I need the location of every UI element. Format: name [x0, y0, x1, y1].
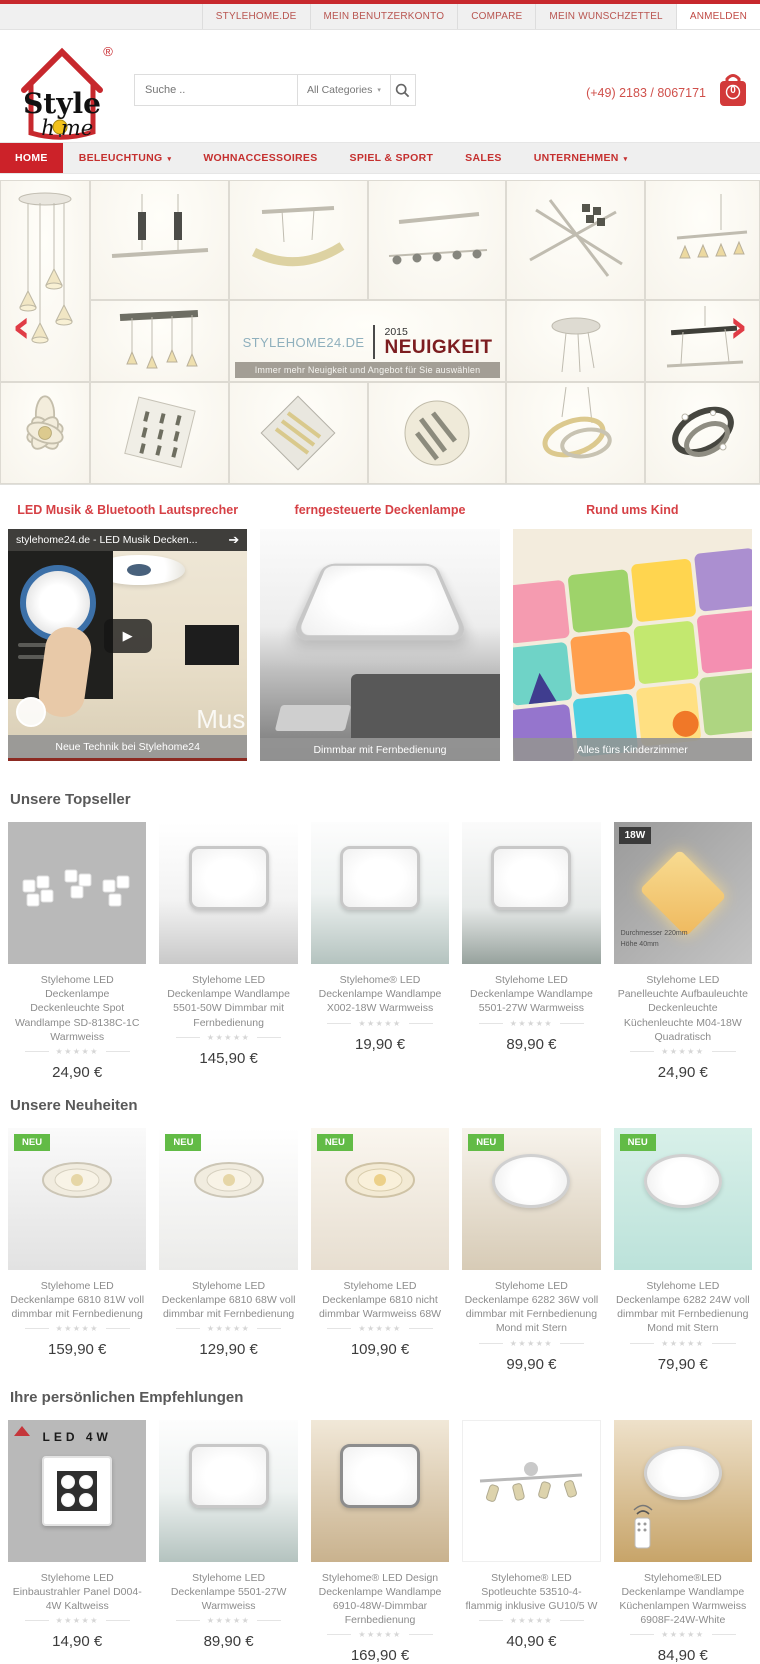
svg-text:me: me	[61, 116, 93, 140]
promo-image-livingroom[interactable]: Dimmbar mit Fernbedienung	[260, 529, 499, 761]
product-card[interactable]: Stylehome® LED Design Deckenlampe Wandla…	[311, 1420, 449, 1664]
section-title: Unsere Topseller	[0, 775, 760, 822]
product-name[interactable]: Stylehome LED Deckenlampe Wandlampe 5501…	[462, 973, 600, 1016]
rating: ★★★★★	[8, 1616, 146, 1625]
ring-pendant-icon	[526, 387, 626, 479]
round-leaf-lamp-icon	[389, 387, 485, 479]
product-price: 24,90 €	[8, 1064, 146, 1081]
logo[interactable]: Style h me ®	[10, 40, 128, 149]
new-badge: NEU	[468, 1134, 504, 1151]
hero-tile-round-canopy[interactable]	[506, 300, 645, 382]
search-button[interactable]	[390, 75, 415, 105]
section-neuheiten: Unsere Neuheiten NEU Stylehome LED Decke…	[0, 1081, 760, 1373]
product-card[interactable]: NEU Stylehome LED Deckenlampe 6282 24W v…	[614, 1128, 752, 1373]
search-input[interactable]	[135, 75, 297, 105]
rating: ★★★★★	[311, 1324, 449, 1333]
product-price: 84,90 €	[614, 1647, 752, 1664]
new-badge: NEU	[165, 1134, 201, 1151]
search-icon	[395, 83, 410, 98]
product-name[interactable]: Stylehome® LED Spotleuchte 53510-4-flamm…	[462, 1571, 600, 1614]
section-topseller: Unsere Topseller Stylehome LED Deckenlam…	[0, 775, 760, 1081]
spot-bar-lamp-icon	[472, 1459, 590, 1523]
play-button[interactable]: ▶	[104, 619, 152, 653]
product-name[interactable]: Stylehome LED Deckenlampe 6282 36W voll …	[462, 1279, 600, 1336]
rating: ★★★★★	[462, 1019, 600, 1028]
video-watermark: Mus	[196, 704, 245, 735]
product-name[interactable]: Stylehome LED Deckenlampe 6810 81W voll …	[8, 1279, 146, 1322]
ceiling-lamp	[290, 564, 471, 641]
new-badge: NEU	[317, 1134, 353, 1151]
rating: ★★★★★	[462, 1616, 600, 1625]
topbar-link-compare[interactable]: COMPARE	[457, 4, 535, 29]
wave-ceiling-lamp-icon	[338, 1150, 422, 1210]
nav-item-wohnaccessoires[interactable]: WOHNACCESSOIRES	[187, 143, 333, 173]
video-titlebar: stylehome24.de - LED Musik Decken... ➔	[8, 529, 247, 551]
rating: ★★★★★	[8, 1047, 146, 1056]
product-image	[462, 1420, 600, 1562]
hero-tile-bar-pendant[interactable]	[90, 300, 229, 382]
wave-ceiling-lamp-icon	[187, 1150, 271, 1210]
hero-tile-flower-lamp[interactable]	[0, 382, 90, 484]
rating: ★★★★★	[159, 1324, 297, 1333]
topbar-link-wishlist[interactable]: MEIN WUNSCHZETTEL	[535, 4, 675, 29]
product-price: 129,90 €	[159, 1341, 297, 1358]
product-name[interactable]: Stylehome® LED Deckenlampe Wandlampe X00…	[311, 973, 449, 1016]
product-image	[159, 822, 297, 964]
product-price: 159,90 €	[8, 1341, 146, 1358]
product-name[interactable]: Stylehome LED Deckenlampe Wandlampe 5501…	[159, 973, 297, 1030]
product-price: 14,90 €	[8, 1633, 146, 1650]
nav-item-spiel-sport[interactable]: SPIEL & SPORT	[334, 143, 450, 173]
product-name[interactable]: Stylehome®LED Deckenlampe Wandlampe Küch…	[614, 1571, 752, 1628]
coffee-table	[275, 705, 351, 731]
phone-app-panel	[8, 551, 113, 699]
category-select-value: All Categories	[307, 84, 372, 96]
hero-tile-curved-pendant[interactable]	[229, 180, 368, 300]
product-price: 79,90 €	[614, 1356, 752, 1373]
hero-tile-diamond-lamp[interactable]	[229, 382, 368, 484]
product-card[interactable]: Stylehome® LED Spotleuchte 53510-4-flamm…	[462, 1420, 600, 1664]
hero-slider: ‹ ›	[0, 180, 760, 485]
hero-brand-text: STYLEHOME24.DE	[243, 335, 365, 350]
square-ceiling-lamp-icon	[340, 1444, 420, 1508]
new-badge: NEU	[14, 1134, 50, 1151]
header: Style h me ® All Categories ▾	[0, 30, 760, 142]
hero-prev-button[interactable]: ‹	[12, 308, 31, 345]
promo-music-lamp: LED Musik & Bluetooth Lautsprecher style…	[8, 501, 247, 761]
product-name[interactable]: Stylehome LED Deckenlampe 6810 nicht dim…	[311, 1279, 449, 1322]
rating: ★★★★★	[159, 1033, 297, 1042]
product-image	[159, 1420, 297, 1562]
hero-tile-pendant-cones[interactable]	[645, 180, 760, 300]
nav-item-sales[interactable]: SALES	[449, 143, 518, 173]
section-title: Unsere Neuheiten	[0, 1081, 760, 1128]
topbar-link-stylehome[interactable]: STYLEHOME.DE	[202, 4, 310, 29]
product-image: NEU	[159, 1128, 297, 1270]
curved-pendant-icon	[242, 194, 354, 286]
logo-house-icon: Style h me ®	[10, 40, 122, 144]
product-card[interactable]: NEU Stylehome LED Deckenlampe 6810 81W v…	[8, 1128, 146, 1373]
hero-headline: NEUIGKEIT	[384, 338, 492, 358]
product-image	[614, 1420, 752, 1562]
section-title: Ihre persönlichen Empfehlungen	[0, 1373, 760, 1420]
hero-divider	[373, 325, 375, 359]
rating: ★★★★★	[614, 1630, 752, 1639]
rating: ★★★★★	[311, 1630, 449, 1639]
product-price: 19,90 €	[311, 1036, 449, 1053]
rating-stars: ★★★★★	[56, 1047, 99, 1056]
topbar-link-login[interactable]: ANMELDEN	[676, 4, 760, 29]
product-image: NEU	[462, 1128, 600, 1270]
topbar: STYLEHOME.DE MEIN BENUTZERKONTO COMPARE …	[0, 4, 760, 30]
product-image: NEU	[614, 1128, 752, 1270]
product-image: NEU	[8, 1128, 146, 1270]
square-panel-icon	[109, 387, 209, 479]
product-image: 18W Durchmesser 220mm Höhe 40mm	[614, 822, 752, 964]
product-price: 109,90 €	[311, 1341, 449, 1358]
chevron-down-icon: ▾	[377, 86, 381, 94]
led-panel-spot-icon	[42, 1456, 112, 1526]
square-ceiling-lamp-icon	[340, 846, 420, 910]
product-card[interactable]: NEU Stylehome LED Deckenlampe 6810 nicht…	[311, 1128, 449, 1373]
bar-pendant-icon	[104, 306, 214, 376]
product-price: 24,90 €	[614, 1064, 752, 1081]
hero-tile-crystal-rings[interactable]	[645, 382, 760, 484]
rating: ★★★★★	[311, 1019, 449, 1028]
topbar-link-account[interactable]: MEIN BENUTZERKONTO	[310, 4, 458, 29]
promo-caption: Dimmbar mit Fernbedienung	[260, 738, 499, 761]
promo-row: LED Musik & Bluetooth Lautsprecher style…	[0, 485, 760, 775]
product-name[interactable]: Stylehome LED Deckenlampe 6282 24W voll …	[614, 1279, 752, 1336]
product-card[interactable]: Stylehome LED Deckenlampe Wandlampe 5501…	[159, 822, 297, 1081]
rating: ★★★★★	[8, 1324, 146, 1333]
phone-number: (+49) 2183 / 8067171	[586, 86, 706, 100]
product-image: NEU	[311, 1128, 449, 1270]
sofa	[351, 674, 499, 738]
tv-screen	[185, 625, 239, 665]
rating: ★★★★★	[159, 1616, 297, 1625]
promo-image-kids-mat[interactable]: Alles fürs Kinderzimmer	[513, 529, 752, 761]
product-image: LED 4W	[8, 1420, 146, 1562]
hero-tile-spot-rail[interactable]	[368, 180, 507, 300]
square-ceiling-lamp-icon	[189, 1444, 269, 1508]
product-name[interactable]: Stylehome LED Deckenlampe Deckenleuchte …	[8, 973, 146, 1044]
promo-video[interactable]: stylehome24.de - LED Musik Decken... ➔ ▶…	[8, 529, 247, 761]
product-card[interactable]: Stylehome LED Deckenlampe 5501-27W Warmw…	[159, 1420, 297, 1664]
product-price: 89,90 €	[462, 1036, 600, 1053]
hero-banner-message[interactable]: STYLEHOME24.DE 2015 NEUIGKEIT Immer mehr…	[229, 300, 507, 382]
nav-item-unternehmen[interactable]: UNTERNEHMEN▾	[518, 143, 644, 173]
header-right: (+49) 2183 / 8067171 0	[586, 72, 748, 113]
rating: ★★★★★	[462, 1339, 600, 1348]
product-image	[8, 822, 146, 964]
remote-control-icon	[626, 1504, 658, 1552]
hero-tile-cross-ceiling-lamp[interactable]	[506, 180, 645, 300]
spot-rail-icon	[381, 194, 493, 286]
promo-caption: Neue Technik bei Stylehome24	[8, 735, 247, 758]
spot-cluster-lamp-icon	[21, 864, 133, 922]
cart-button[interactable]: 0	[718, 72, 748, 113]
promo-remote-lamp: ferngesteuerte Deckenlampe Dimmbar mit F…	[260, 501, 499, 761]
hero-tile-round-leaf-lamp[interactable]	[368, 382, 507, 484]
promo-kids: Rund ums Kind Alles fürs Kinderzimmer	[513, 501, 752, 761]
diamond-lamp-icon	[248, 387, 348, 479]
round-ceiling-lamp-icon	[644, 1446, 722, 1500]
search-area: All Categories ▾	[134, 74, 416, 106]
cross-lamp-icon	[520, 194, 632, 286]
product-image-label: LED 4W	[8, 1430, 146, 1444]
category-select[interactable]: All Categories ▾	[297, 75, 390, 105]
wattage-badge: 18W	[619, 827, 652, 844]
product-image	[462, 822, 600, 964]
video-title: stylehome24.de - LED Musik Decken...	[16, 534, 198, 546]
product-card[interactable]: LED 4W Stylehome LED Einbaustrahler Pane…	[8, 1420, 146, 1664]
video-progress-bar[interactable]	[8, 758, 247, 761]
product-image	[311, 822, 449, 964]
page: STYLEHOME.DE MEIN BENUTZERKONTO COMPARE …	[0, 0, 760, 1664]
new-badge: NEU	[620, 1134, 656, 1151]
round-canopy-icon	[526, 306, 626, 376]
product-card[interactable]: Stylehome LED Deckenlampe Wandlampe 5501…	[462, 822, 600, 1081]
svg-text:®: ®	[103, 44, 113, 59]
product-card[interactable]: Stylehome LED Deckenlampe Deckenleuchte …	[8, 822, 146, 1081]
product-card[interactable]: Stylehome® LED Deckenlampe Wandlampe X00…	[311, 822, 449, 1081]
video-control-circle	[16, 697, 46, 727]
flower-lamp-icon	[1, 387, 89, 479]
product-name[interactable]: Stylehome LED Panelleuchte Aufbauleuchte…	[614, 973, 752, 1044]
cart-count-badge: 0	[718, 85, 748, 96]
promo-caption: Alles fürs Kinderzimmer	[513, 738, 752, 761]
chevron-down-icon: ▾	[168, 155, 172, 163]
product-card[interactable]: Stylehome®LED Deckenlampe Wandlampe Küch…	[614, 1420, 752, 1664]
product-name[interactable]: Stylehome LED Deckenlampe 6810 68W voll …	[159, 1279, 297, 1322]
product-card[interactable]: 18W Durchmesser 220mm Höhe 40mm Stylehom…	[614, 822, 752, 1081]
product-image	[311, 1420, 449, 1562]
product-name[interactable]: Stylehome® LED Design Deckenlampe Wandla…	[311, 1571, 449, 1628]
product-name[interactable]: Stylehome LED Einbaustrahler Panel D004-…	[8, 1571, 146, 1614]
rating: ★★★★★	[614, 1339, 752, 1348]
rating: ★★★★★	[614, 1047, 752, 1056]
promo-title: Rund ums Kind	[513, 503, 752, 517]
product-name[interactable]: Stylehome LED Deckenlampe 5501-27W Warmw…	[159, 1571, 297, 1614]
share-arrow-icon[interactable]: ➔	[228, 532, 239, 548]
product-price: 99,90 €	[462, 1356, 600, 1373]
product-card[interactable]: NEU Stylehome LED Deckenlampe 6282 36W v…	[462, 1128, 600, 1373]
promo-title: ferngesteuerte Deckenlampe	[260, 503, 499, 517]
product-price: 40,90 €	[462, 1633, 600, 1650]
linear-pendant-icon	[104, 194, 214, 286]
section-empfehlungen: Ihre persönlichen Empfehlungen LED 4W St…	[0, 1373, 760, 1664]
chevron-down-icon: ▾	[624, 155, 628, 163]
square-ceiling-lamp-icon	[189, 846, 269, 910]
play-icon: ▶	[123, 628, 133, 644]
product-card[interactable]: NEU Stylehome LED Deckenlampe 6810 68W v…	[159, 1128, 297, 1373]
crystal-rings-icon	[653, 387, 753, 479]
wave-ceiling-lamp-icon	[35, 1150, 119, 1210]
product-price: 89,90 €	[159, 1633, 297, 1650]
hero-tagline: Immer mehr Neuigkeit und Angebot für Sie…	[235, 362, 501, 378]
pendant-cones-icon	[655, 194, 751, 286]
hero-tile-square-panel[interactable]	[90, 382, 229, 484]
hero-tile-ring-pendant[interactable]	[506, 382, 645, 484]
dimension-labels: Durchmesser 220mm Höhe 40mm	[621, 928, 688, 950]
led-panel-icon	[639, 849, 726, 936]
round-ceiling-lamp-icon	[644, 1154, 722, 1208]
round-ceiling-lamp-icon	[492, 1154, 570, 1208]
hero-tile-linear-pendant[interactable]	[90, 180, 229, 300]
hero-next-button[interactable]: ›	[729, 308, 748, 345]
promo-title: LED Musik & Bluetooth Lautsprecher	[8, 503, 247, 517]
product-price: 169,90 €	[311, 1647, 449, 1664]
puzzle-mat-icon	[513, 543, 752, 761]
product-price: 145,90 €	[159, 1050, 297, 1067]
square-ceiling-lamp-icon	[491, 846, 571, 910]
